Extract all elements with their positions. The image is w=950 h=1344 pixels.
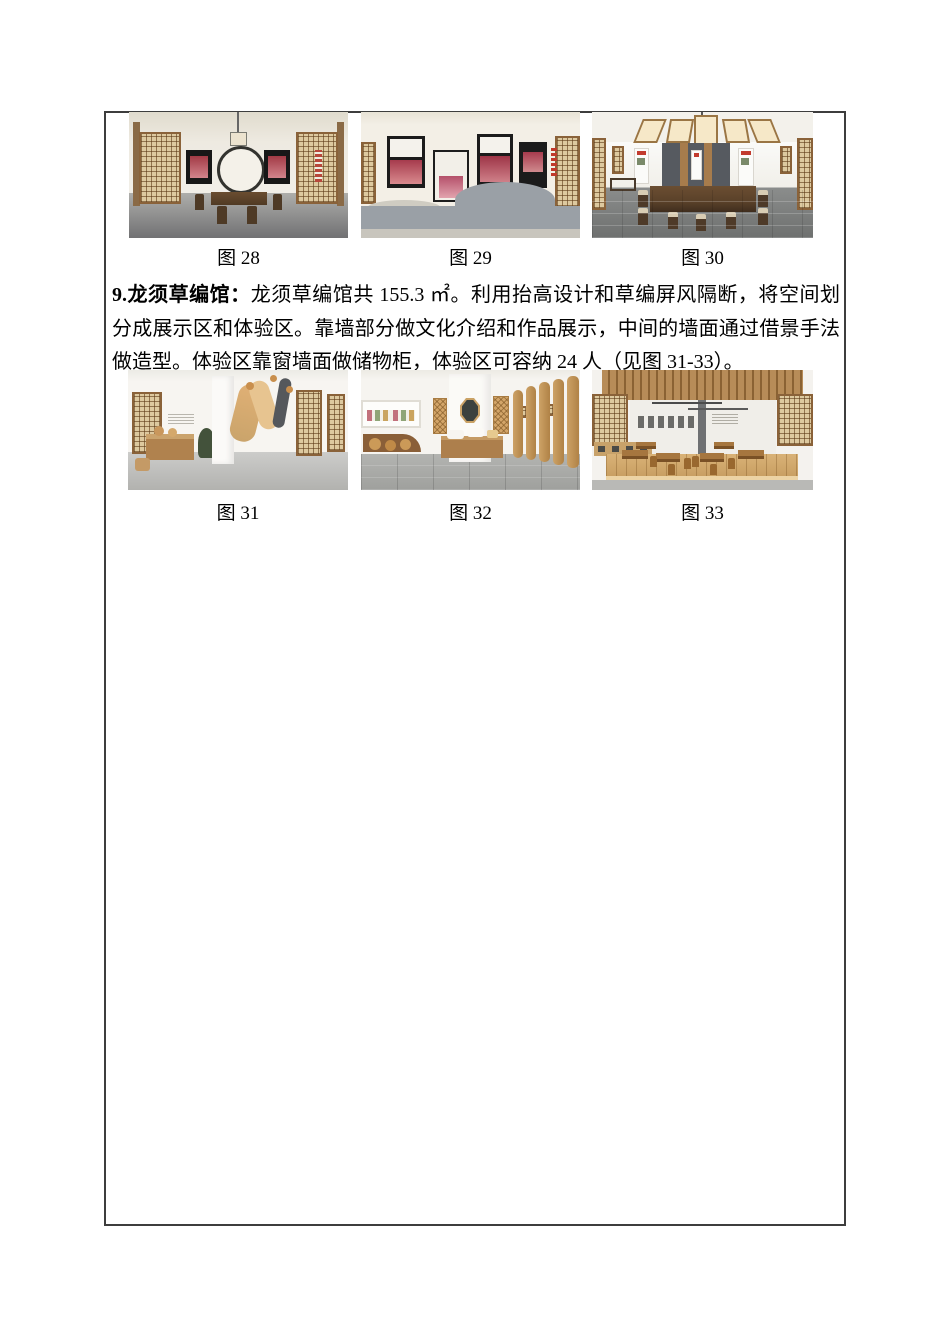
wood-table xyxy=(211,192,267,205)
room-floor xyxy=(592,190,813,238)
figure-28-image xyxy=(129,112,348,238)
chair xyxy=(195,194,204,210)
wood-table xyxy=(622,450,648,459)
wall-poster xyxy=(691,150,702,180)
chair xyxy=(684,458,691,469)
dark-wall-column xyxy=(662,143,680,189)
woven-slat-screen xyxy=(513,390,523,458)
figure-33-caption: 图 33 xyxy=(592,501,813,527)
panel-text xyxy=(390,139,422,157)
wood-strip xyxy=(680,143,688,189)
lattice-window xyxy=(555,136,580,208)
poster-red-header xyxy=(694,153,699,157)
floor-strip xyxy=(361,229,580,238)
poster-photo xyxy=(741,158,749,165)
wood-table xyxy=(636,442,656,449)
moon-gate-wall xyxy=(217,146,265,194)
pendant-lamp xyxy=(230,132,247,146)
figure-28-caption: 图 28 xyxy=(129,246,348,272)
woven-disc xyxy=(385,440,396,451)
woven-panel xyxy=(433,398,447,434)
wall-text xyxy=(712,414,738,424)
hanging-sphere xyxy=(270,375,277,382)
ceiling-light xyxy=(666,119,694,143)
photo xyxy=(268,156,286,178)
red-caption-strip xyxy=(551,146,557,176)
figure-32-image xyxy=(361,370,580,490)
lattice-window xyxy=(780,146,792,174)
wood-lattice-screen xyxy=(592,394,628,446)
chair xyxy=(217,206,227,224)
wood-lattice-door xyxy=(139,132,181,204)
display-frames xyxy=(638,416,700,428)
seat-cushion xyxy=(467,428,484,437)
linear-light xyxy=(688,408,748,410)
poster-red-header xyxy=(741,151,751,155)
pendant-rod xyxy=(237,112,239,134)
woven-panel xyxy=(493,396,509,434)
wall-poster xyxy=(634,148,649,184)
woven-stool xyxy=(135,458,150,471)
woven-disc xyxy=(369,438,381,450)
figure-33-image xyxy=(592,370,813,490)
wall-sign xyxy=(168,412,194,424)
lattice-window xyxy=(361,142,376,204)
photo-strip xyxy=(367,410,415,421)
wood-counter xyxy=(146,434,194,460)
figure-31-caption: 图 31 xyxy=(128,501,348,527)
hanging-sphere xyxy=(286,386,293,393)
display-screen xyxy=(264,150,290,184)
hanging-sphere xyxy=(246,382,254,390)
linear-light xyxy=(652,402,722,404)
console-table xyxy=(610,178,636,191)
section-paragraph: 9.龙须草编馆：龙须草编馆共 155.3 ㎡。利用抬高设计和草编屏风隔断，将空间… xyxy=(112,279,840,380)
wood-pillar xyxy=(337,122,344,206)
poster-photo xyxy=(637,158,645,165)
chair xyxy=(710,464,717,475)
panel-photo xyxy=(390,160,422,184)
chair xyxy=(668,464,675,475)
panel-text xyxy=(480,137,510,153)
wood-lattice-screen xyxy=(327,394,345,452)
chair xyxy=(273,194,282,210)
display-screen xyxy=(186,150,212,184)
woven-slat-screen xyxy=(526,386,536,460)
display-panel xyxy=(387,136,425,188)
document-page: 图 28 图 29 图 30 9.龙须草编馆：龙须草编馆共 155.3 ㎡。利用… xyxy=(0,0,950,1344)
woven-disc xyxy=(400,439,411,450)
display-panel xyxy=(519,142,547,188)
section-heading: 9.龙须草编馆： xyxy=(112,284,251,306)
figure-30-caption: 图 30 xyxy=(592,246,813,272)
woven-slat-screen xyxy=(553,379,564,465)
figure-31-image xyxy=(128,370,348,490)
ceiling-light xyxy=(722,119,750,143)
wood-cabinet xyxy=(441,436,503,458)
ceiling-light xyxy=(633,119,667,143)
seat-cushion xyxy=(447,430,464,439)
panel-photo xyxy=(523,152,543,172)
wood-table xyxy=(738,450,764,459)
figure-29-caption: 图 29 xyxy=(361,246,580,272)
display-panel xyxy=(477,134,513,186)
poster-red-header xyxy=(637,151,646,155)
figure-29-image xyxy=(361,112,580,238)
dark-wall-column xyxy=(712,143,730,189)
red-banner xyxy=(315,150,322,182)
front-floor xyxy=(592,480,813,490)
chair xyxy=(650,456,657,467)
wood-table xyxy=(700,453,724,462)
ceiling-light xyxy=(747,119,781,143)
lattice-window xyxy=(612,146,624,174)
chair xyxy=(728,458,735,469)
wood-lattice-screen xyxy=(777,394,813,446)
wood-strip xyxy=(704,143,712,189)
panel-photo xyxy=(480,156,510,182)
figure-30-image xyxy=(592,112,813,238)
chair xyxy=(692,456,699,467)
pillow xyxy=(487,430,498,438)
woven-slat-screen xyxy=(539,382,550,462)
woven-slat-screen xyxy=(567,376,579,468)
woven-basket xyxy=(154,426,164,436)
photo xyxy=(190,156,208,178)
chair xyxy=(247,206,257,224)
woven-basket xyxy=(168,428,177,437)
wood-table xyxy=(714,442,734,449)
wood-slat-ceiling xyxy=(602,370,803,400)
wood-lattice-screen xyxy=(296,390,322,456)
figure-32-caption: 图 32 xyxy=(361,501,580,527)
display-board xyxy=(361,400,421,428)
brick-base xyxy=(361,206,580,230)
wood-table xyxy=(656,453,680,462)
wall-poster xyxy=(738,148,754,186)
